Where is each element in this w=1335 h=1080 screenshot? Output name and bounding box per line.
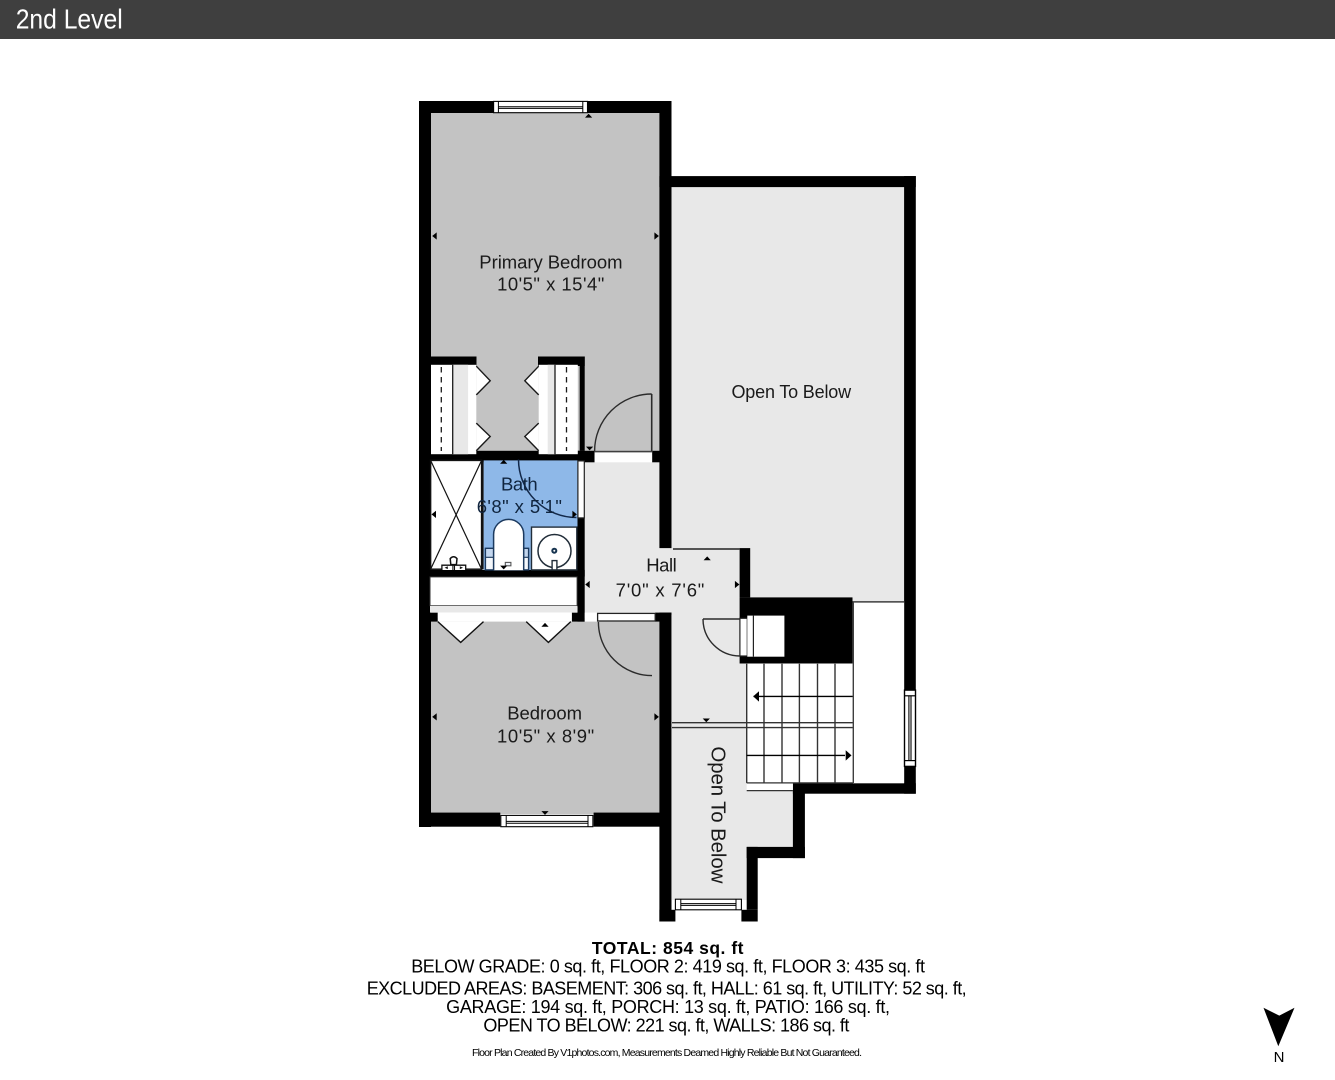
svg-text:Open To Below: Open To Below [706,746,729,883]
svg-text:Bedroom: Bedroom [507,703,582,724]
svg-text:EXCLUDED AREAS: BASEMENT: 306: EXCLUDED AREAS: BASEMENT: 306 sq. ft, HA… [367,978,967,998]
svg-text:Open To Below: Open To Below [731,382,852,402]
svg-text:Hall: Hall [646,555,677,576]
svg-text:TOTAL: 854 sq. ft: TOTAL: 854 sq. ft [592,938,744,958]
svg-text:OPEN TO BELOW: 221 sq. ft, WAL: OPEN TO BELOW: 221 sq. ft, WALLS: 186 sq… [483,1015,849,1035]
svg-text:7'0" x 7'6": 7'0" x 7'6" [616,580,705,601]
svg-text:Primary Bedroom: Primary Bedroom [479,252,622,273]
svg-text:N: N [1274,1049,1285,1066]
svg-text:BELOW GRADE: 0 sq. ft, FLOOR 2: BELOW GRADE: 0 sq. ft, FLOOR 2: 419 sq. … [411,957,925,977]
svg-text:Floor Plan Created By V1photos: Floor Plan Created By V1photos.com, Meas… [472,1047,862,1059]
svg-text:Bath: Bath [501,474,538,495]
svg-text:2nd Level: 2nd Level [16,3,123,34]
svg-text:10'5" x 8'9": 10'5" x 8'9" [497,726,594,747]
svg-text:10'5" x 15'4": 10'5" x 15'4" [497,273,604,294]
svg-text:6'8" x 5'1": 6'8" x 5'1" [477,496,562,517]
svg-text:GARAGE: 194 sq. ft, PORCH: 13: GARAGE: 194 sq. ft, PORCH: 13 sq. ft, PA… [446,997,890,1017]
